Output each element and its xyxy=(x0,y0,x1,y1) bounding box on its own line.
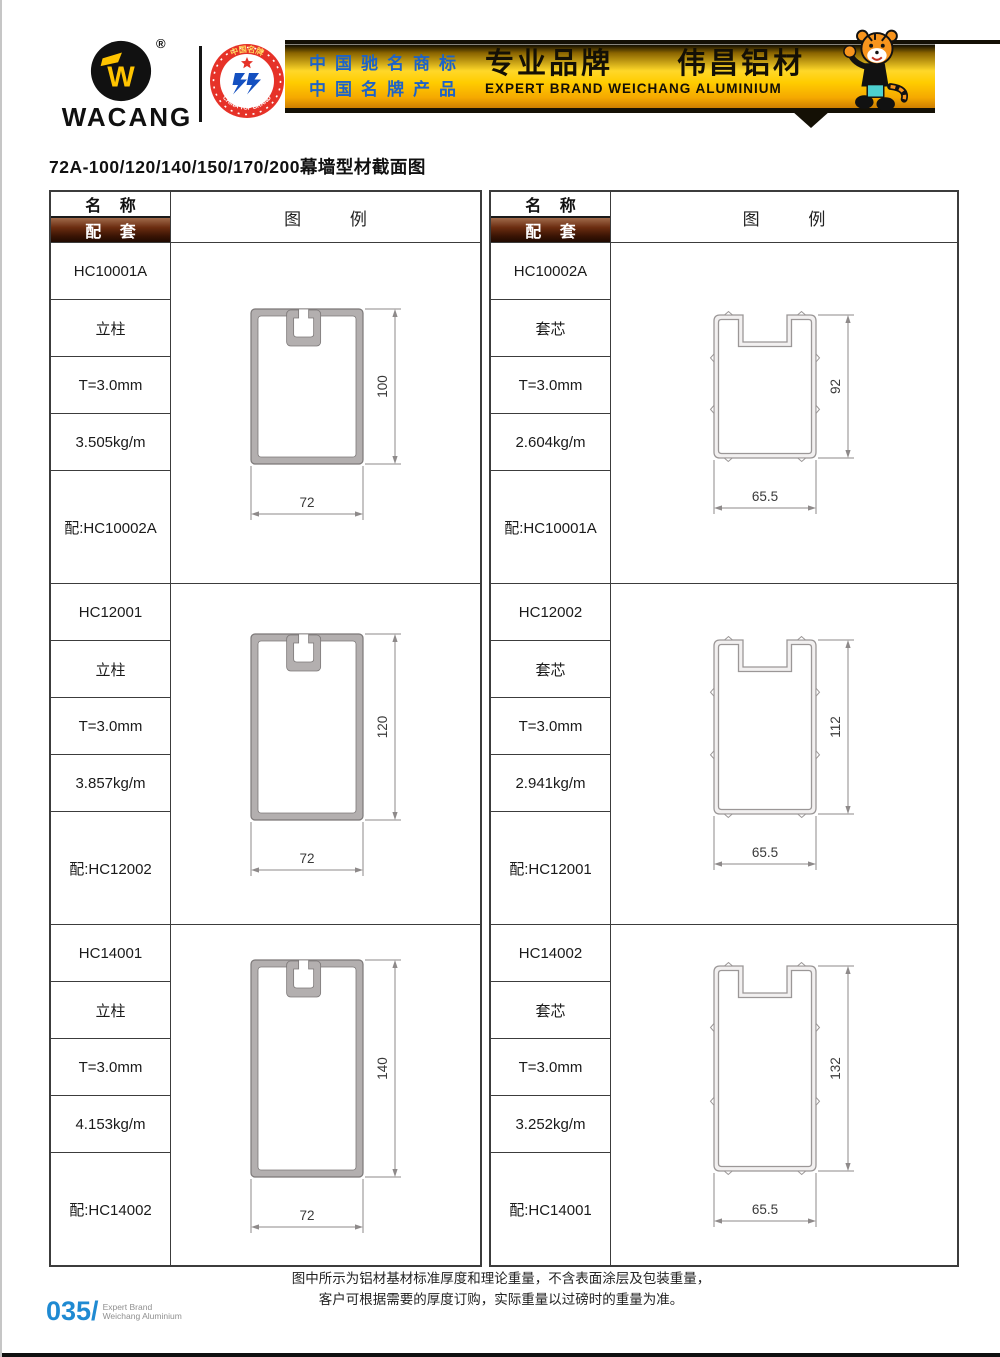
banner-notch xyxy=(792,111,830,128)
width-dimension-label: 72 xyxy=(299,1208,314,1223)
profile-match: 配:HC10001A xyxy=(491,471,610,583)
profile-thickness: T=3.0mm xyxy=(491,357,610,414)
height-dimension-label: 140 xyxy=(375,1057,390,1080)
profile-cross-section-diagram: 13265.5 xyxy=(704,956,864,1235)
col-header-legend: 图 例 xyxy=(171,192,480,242)
table-header: 名 称 配 套 图 例 xyxy=(51,192,480,243)
profile-thickness: T=3.0mm xyxy=(51,1039,170,1096)
profile-code: HC12002 xyxy=(491,584,610,641)
profile-type: 立柱 xyxy=(51,982,170,1039)
profile-weight: 4.153kg/m xyxy=(51,1096,170,1153)
profile-thickness: T=3.0mm xyxy=(51,698,170,755)
profile-table-right: 名 称 配 套 图 例 HC10002A 套芯 T=3.0mm 2.604kg/… xyxy=(489,190,959,1267)
height-dimension-label: 120 xyxy=(375,716,390,739)
profile-cross-section-diagram: 10072 xyxy=(241,299,411,528)
brand-line2: Weichang Aluminium xyxy=(103,1312,182,1321)
profile-thickness: T=3.0mm xyxy=(491,1039,610,1096)
catalog-page: W ® WACANG 中国名牌 CHINA TOP BRAND 中国驰名商标 中… xyxy=(0,0,1000,1357)
profile-weight: 3.857kg/m xyxy=(51,755,170,812)
width-dimension-label: 65.5 xyxy=(752,845,778,860)
profile-code: HC10002A xyxy=(491,243,610,300)
col-header-match: 配 套 xyxy=(51,216,170,242)
banner-brand-text: 专业品牌 伟昌铝材 EXPERT BRAND WEICHANG ALUMINIU… xyxy=(485,47,805,96)
tiger-mascot-icon xyxy=(840,28,910,112)
profile-table-left: 名 称 配 套 图 例 HC10001A 立柱 T=3.0mm 3.505kg/… xyxy=(49,190,482,1267)
banner-cert-line2: 中国名牌产品 xyxy=(309,77,465,103)
svg-text:W: W xyxy=(107,62,135,94)
profile-weight: 3.505kg/m xyxy=(51,414,170,471)
profile-cross-section-diagram: 11265.5 xyxy=(704,630,864,878)
profile-code: HC12001 xyxy=(51,584,170,641)
brand-banner: 中国驰名商标 中国名牌产品 专业品牌 伟昌铝材 EXPERT BRAND WEI… xyxy=(285,40,935,113)
profile-section: HC14002 套芯 T=3.0mm 3.252kg/m 配:HC14001 1… xyxy=(491,925,957,1265)
profile-section: HC12002 套芯 T=3.0mm 2.941kg/m 配:HC12001 1… xyxy=(491,584,957,925)
col-header-legend: 图 例 xyxy=(611,192,957,242)
profile-code: HC10001A xyxy=(51,243,170,300)
height-dimension-label: 112 xyxy=(828,716,843,738)
profile-match: 配:HC14001 xyxy=(491,1153,610,1265)
profile-weight: 3.252kg/m xyxy=(491,1096,610,1153)
width-dimension-label: 72 xyxy=(299,495,314,510)
profile-type: 套芯 xyxy=(491,641,610,698)
footer-note-line1: 图中所示为铝材基材标准厚度和理论重量，不含表面涂层及包装重量， xyxy=(2,1268,1000,1289)
profile-type: 套芯 xyxy=(491,300,610,357)
profile-code: HC14002 xyxy=(491,925,610,982)
profile-cross-section-diagram: 12072 xyxy=(241,624,411,884)
profile-thickness: T=3.0mm xyxy=(51,357,170,414)
profile-match: 配:HC12002 xyxy=(51,812,170,924)
page-title: 72A-100/120/140/150/170/200幕墙型材截面图 xyxy=(49,154,426,179)
width-dimension-label: 65.5 xyxy=(752,489,778,504)
profile-type: 立柱 xyxy=(51,641,170,698)
wacang-logo: W ® WACANG xyxy=(52,36,202,130)
china-top-brand-badge-icon: 中国名牌 CHINA TOP BRAND xyxy=(208,42,286,120)
profile-match: 配:HC10002A xyxy=(51,471,170,583)
table-header: 名 称 配 套 图 例 xyxy=(491,192,957,243)
col-header-name: 名 称 xyxy=(51,192,170,216)
profile-weight: 2.604kg/m xyxy=(491,414,610,471)
wacang-logo-icon: W xyxy=(88,38,154,104)
profile-type: 立柱 xyxy=(51,300,170,357)
registered-mark: ® xyxy=(156,36,166,51)
bottom-edge-bar xyxy=(2,1353,1000,1357)
profile-type: 套芯 xyxy=(491,982,610,1039)
logo-wordmark: WACANG xyxy=(52,102,202,133)
width-dimension-label: 72 xyxy=(299,851,314,866)
banner-title: 专业品牌 伟昌铝材 xyxy=(485,47,805,81)
col-header-match: 配 套 xyxy=(491,216,610,242)
profile-section: HC10001A 立柱 T=3.0mm 3.505kg/m 配:HC10002A… xyxy=(51,243,480,584)
header-divider xyxy=(199,46,202,122)
col-header-name: 名 称 xyxy=(491,192,610,216)
height-dimension-label: 100 xyxy=(375,375,390,398)
profile-match: 配:HC12001 xyxy=(491,812,610,924)
profile-cross-section-diagram: 14072 xyxy=(241,950,411,1241)
page-number: 035/ xyxy=(46,1298,99,1325)
height-dimension-label: 132 xyxy=(828,1057,843,1080)
profile-section: HC14001 立柱 T=3.0mm 4.153kg/m 配:HC14002 1… xyxy=(51,925,480,1265)
height-dimension-label: 92 xyxy=(828,378,843,393)
width-dimension-label: 65.5 xyxy=(752,1202,778,1217)
page-number-block: 035/ Expert Brand Weichang Aluminium xyxy=(46,1298,182,1325)
profile-thickness: T=3.0mm xyxy=(491,698,610,755)
banner-tail-line xyxy=(932,40,1000,44)
profile-cross-section-diagram: 9265.5 xyxy=(704,305,864,522)
page-number-brand: Expert Brand Weichang Aluminium xyxy=(103,1298,182,1321)
banner-cert-line1: 中国驰名商标 xyxy=(309,51,465,77)
profile-match: 配:HC14002 xyxy=(51,1153,170,1265)
profile-section: HC12001 立柱 T=3.0mm 3.857kg/m 配:HC12002 1… xyxy=(51,584,480,925)
profile-section: HC10002A 套芯 T=3.0mm 2.604kg/m 配:HC10001A… xyxy=(491,243,957,584)
banner-certifications: 中国驰名商标 中国名牌产品 xyxy=(309,51,465,103)
banner-subtitle: EXPERT BRAND WEICHANG ALUMINIUM xyxy=(485,81,805,96)
profile-weight: 2.941kg/m xyxy=(491,755,610,812)
profile-code: HC14001 xyxy=(51,925,170,982)
